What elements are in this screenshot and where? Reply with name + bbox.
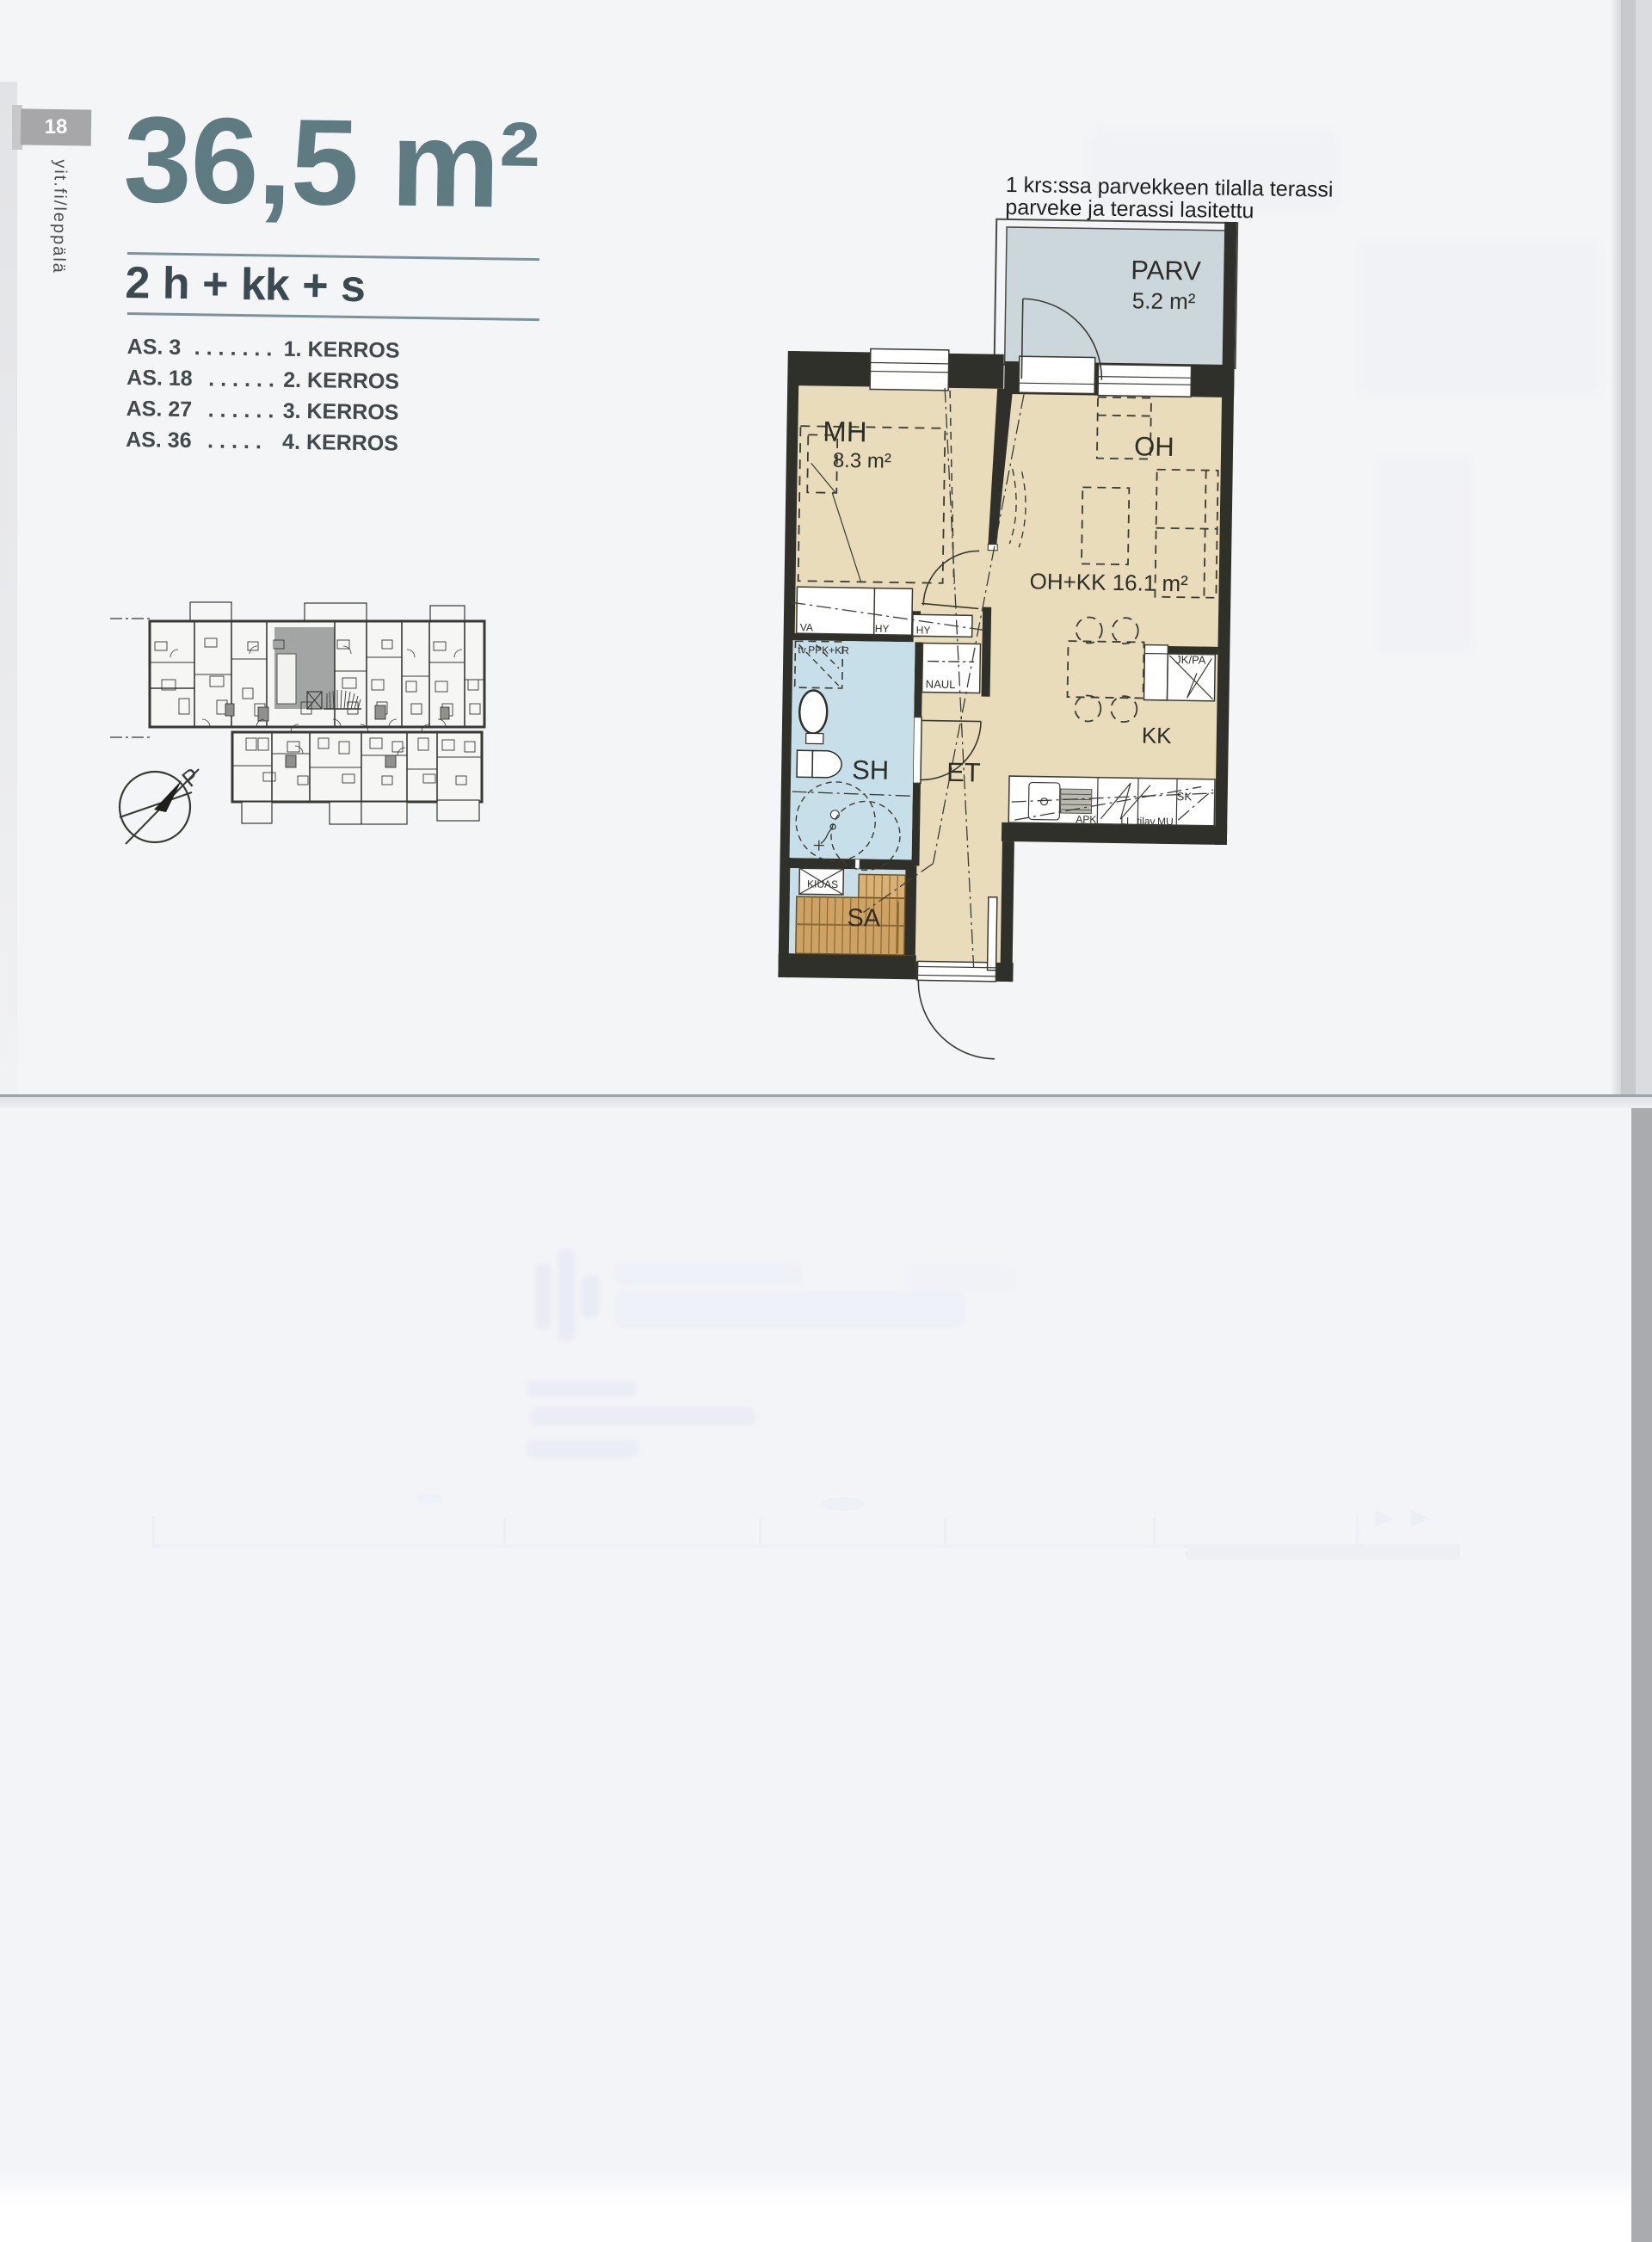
svg-text:VA: VA — [800, 621, 813, 633]
svg-text:8.3 m²: 8.3 m² — [833, 449, 891, 473]
svg-text:tv.PPK+KR: tv.PPK+KR — [798, 644, 849, 656]
svg-text:OH+KK 16.1 m²: OH+KK 16.1 m² — [1029, 568, 1188, 596]
svg-text:APK: APK — [1076, 813, 1096, 825]
svg-text:HY: HY — [916, 624, 931, 636]
svg-text:SK: SK — [1177, 790, 1193, 803]
svg-text:5.2 m²: 5.2 m² — [1132, 287, 1196, 314]
svg-text:SH: SH — [852, 755, 890, 785]
svg-text:SA: SA — [847, 904, 881, 933]
svg-text:OH: OH — [1134, 431, 1174, 462]
svg-text:tilav.MU: tilav.MU — [1137, 815, 1174, 828]
svg-text:KIUAS: KIUAS — [807, 878, 838, 890]
svg-text:HY: HY — [875, 623, 890, 635]
svg-text:JK/PA: JK/PA — [1175, 653, 1206, 667]
svg-text:NAUL: NAUL — [926, 678, 956, 692]
svg-text:KK: KK — [1142, 722, 1173, 748]
svg-text:ET: ET — [946, 757, 981, 788]
svg-text:MH: MH — [823, 416, 867, 448]
svg-text:LI: LI — [1120, 815, 1129, 827]
svg-text:PARV: PARV — [1131, 255, 1201, 286]
